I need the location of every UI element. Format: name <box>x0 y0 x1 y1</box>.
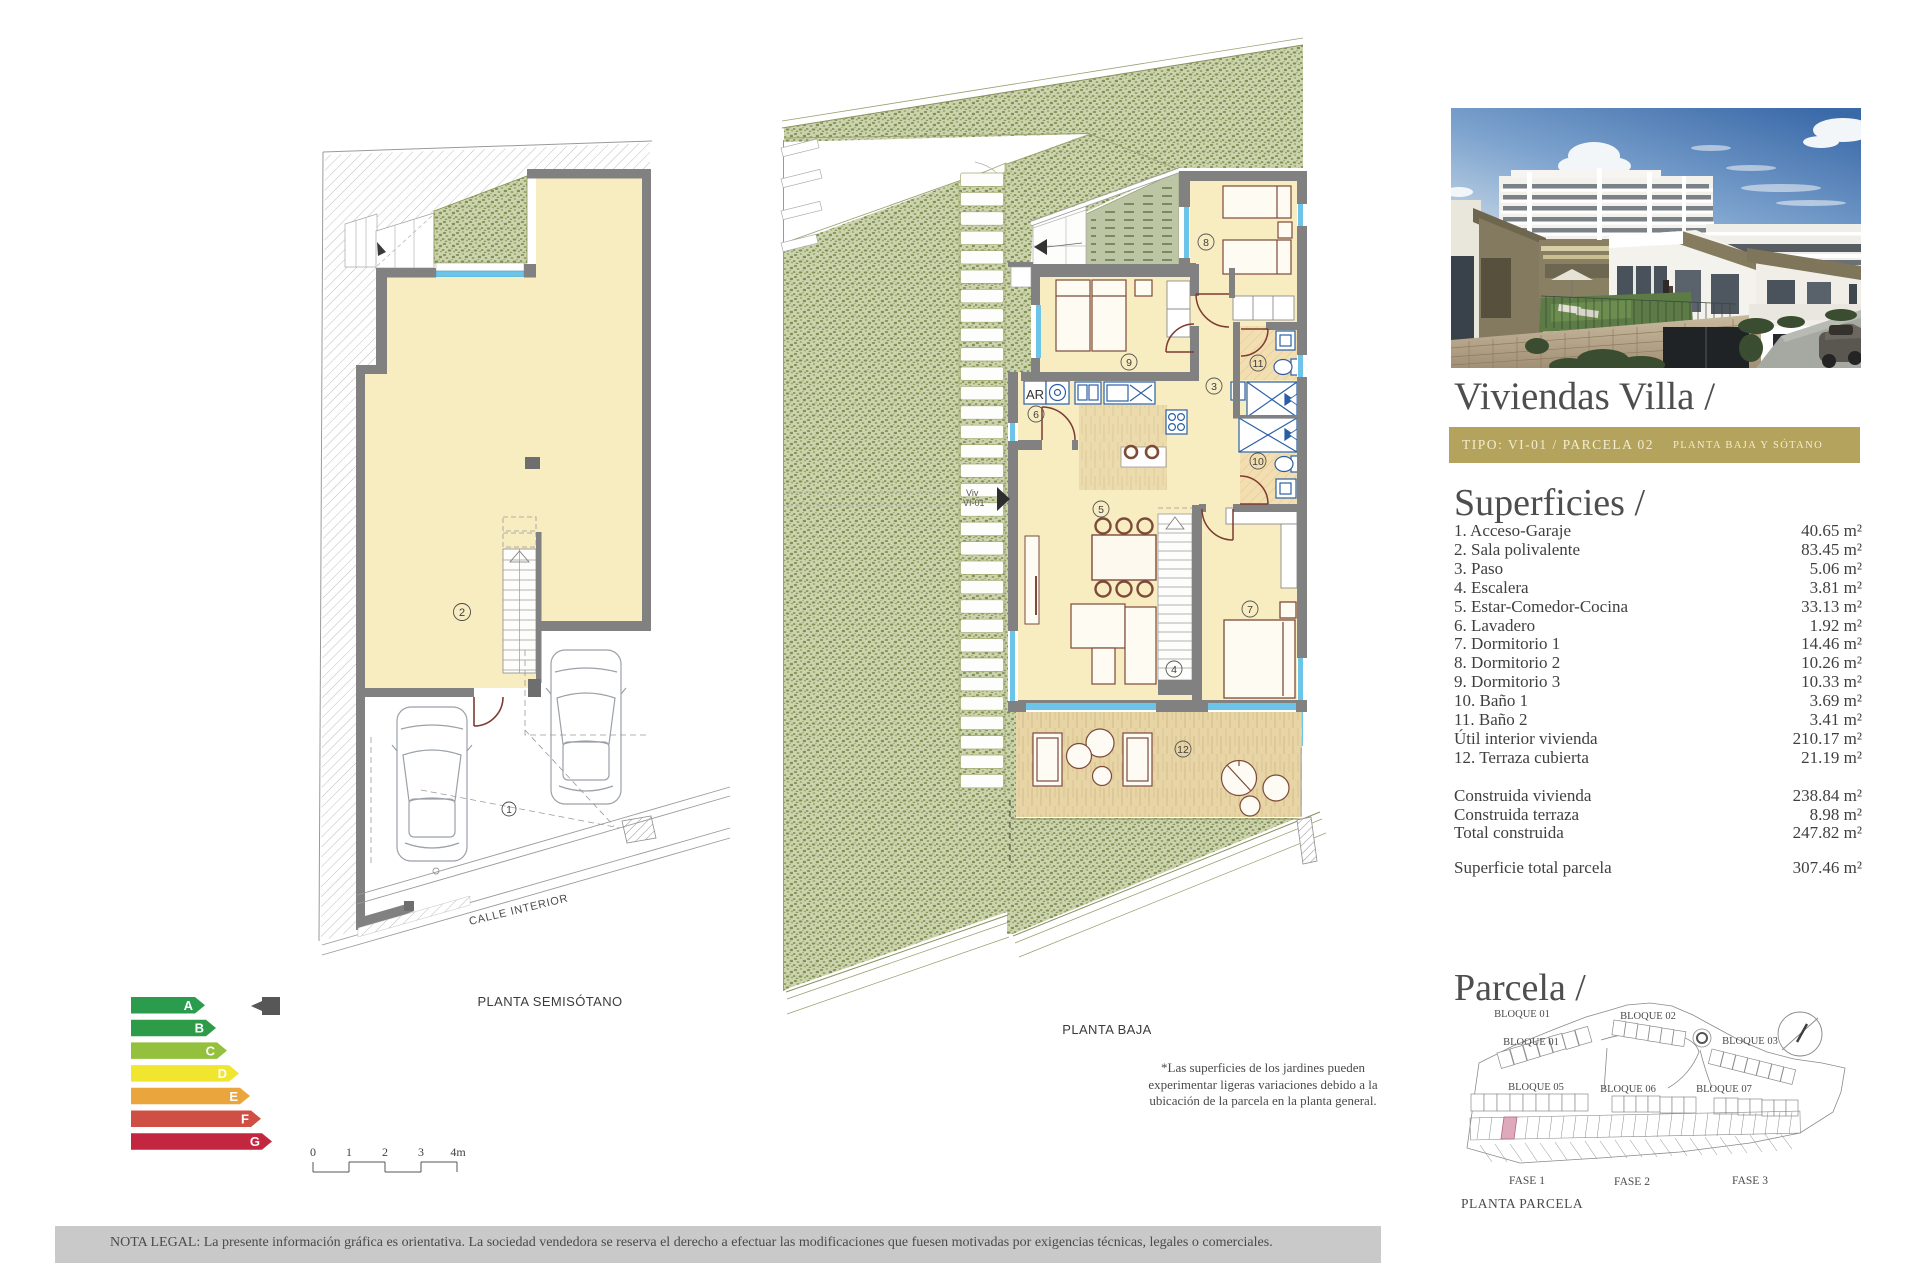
svg-text:BLOQUE 03: BLOQUE 03 <box>1722 1036 1778 1047</box>
svg-text:0: 0 <box>310 1145 316 1159</box>
svg-text:11: 11 <box>1253 358 1264 370</box>
svg-text:3: 3 <box>418 1145 424 1159</box>
svg-text:BLOQUE 01: BLOQUE 01 <box>1494 1009 1550 1020</box>
svg-text:8: 8 <box>1203 237 1209 249</box>
svg-text:10: 10 <box>1252 456 1264 468</box>
svg-text:1: 1 <box>506 805 512 816</box>
svg-text:7: 7 <box>1247 604 1253 616</box>
svg-text:3: 3 <box>1211 381 1217 393</box>
svg-text:G: G <box>250 1134 260 1149</box>
svg-text:AR: AR <box>1026 387 1044 402</box>
svg-text:D: D <box>218 1066 227 1081</box>
svg-text:C: C <box>206 1043 216 1058</box>
svg-text:Viv: Viv <box>966 488 979 498</box>
svg-text:5: 5 <box>1098 504 1104 516</box>
svg-text:BLOQUE 05: BLOQUE 05 <box>1508 1082 1564 1093</box>
svg-text:BLOQUE 01: BLOQUE 01 <box>1503 1037 1559 1048</box>
svg-text:F: F <box>241 1112 249 1127</box>
svg-text:6: 6 <box>1033 409 1039 421</box>
svg-text:FASE 3: FASE 3 <box>1732 1175 1768 1187</box>
svg-text:2: 2 <box>459 607 465 619</box>
svg-text:2: 2 <box>382 1145 388 1159</box>
svg-text:FASE 1: FASE 1 <box>1509 1175 1545 1187</box>
svg-text:4m: 4m <box>450 1145 466 1159</box>
svg-text:4: 4 <box>1171 664 1177 676</box>
svg-text:A: A <box>184 998 194 1013</box>
svg-text:BLOQUE 06: BLOQUE 06 <box>1600 1084 1656 1095</box>
svg-text:E: E <box>229 1089 238 1104</box>
svg-text:9: 9 <box>1126 357 1132 369</box>
svg-text:CALLE INTERIOR: CALLE INTERIOR <box>468 893 570 928</box>
svg-text:VI-01: VI-01 <box>963 498 985 508</box>
svg-text:1: 1 <box>346 1145 352 1159</box>
svg-text:BLOQUE 07: BLOQUE 07 <box>1696 1084 1752 1095</box>
svg-text:FASE 2: FASE 2 <box>1614 1176 1650 1188</box>
svg-text:12: 12 <box>1177 744 1189 756</box>
svg-text:B: B <box>195 1021 204 1036</box>
svg-text:BLOQUE 02: BLOQUE 02 <box>1620 1011 1676 1022</box>
